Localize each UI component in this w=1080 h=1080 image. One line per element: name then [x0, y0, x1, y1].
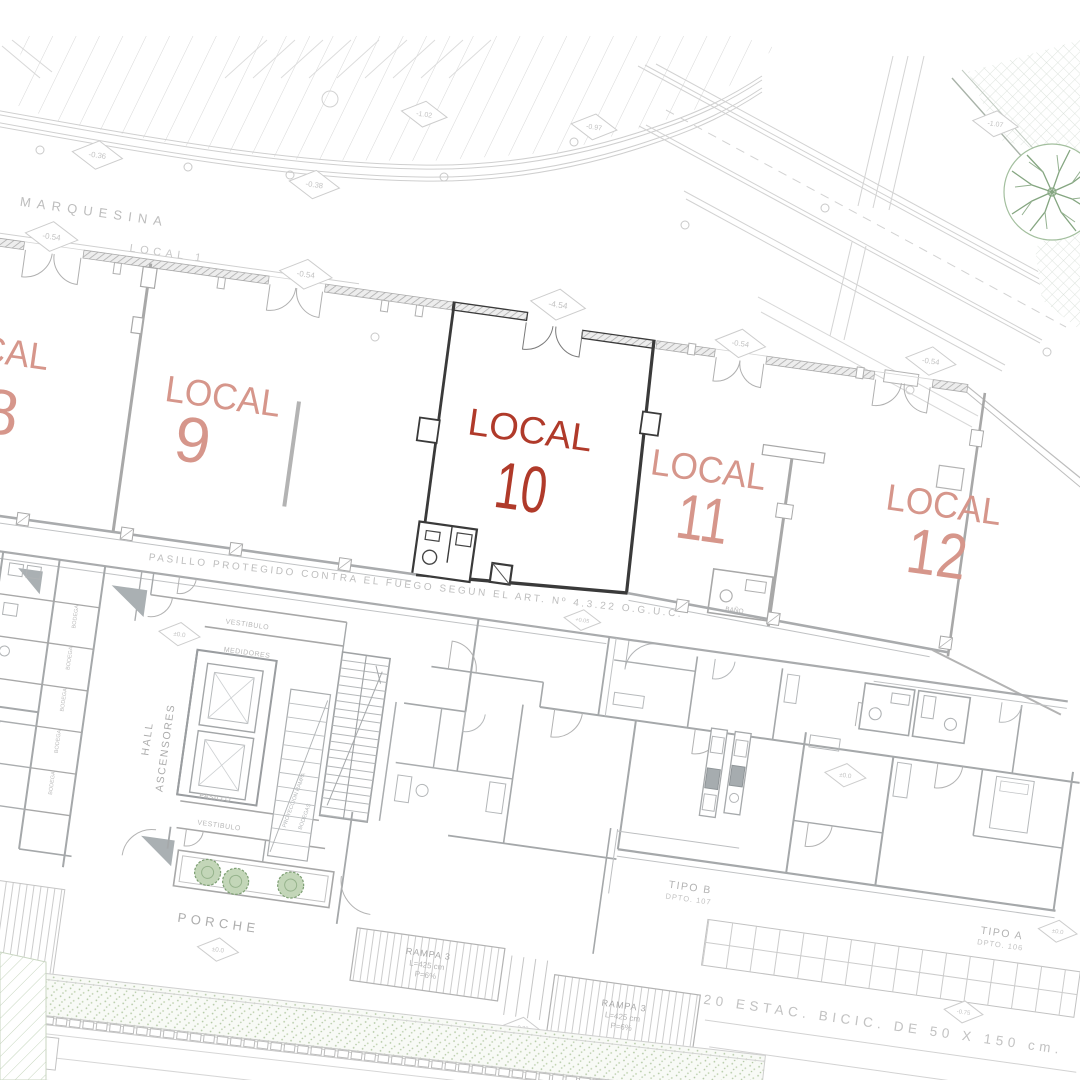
- svg-text:11: 11: [672, 480, 734, 559]
- svg-text:10: 10: [490, 447, 552, 528]
- svg-text:12: 12: [902, 514, 971, 594]
